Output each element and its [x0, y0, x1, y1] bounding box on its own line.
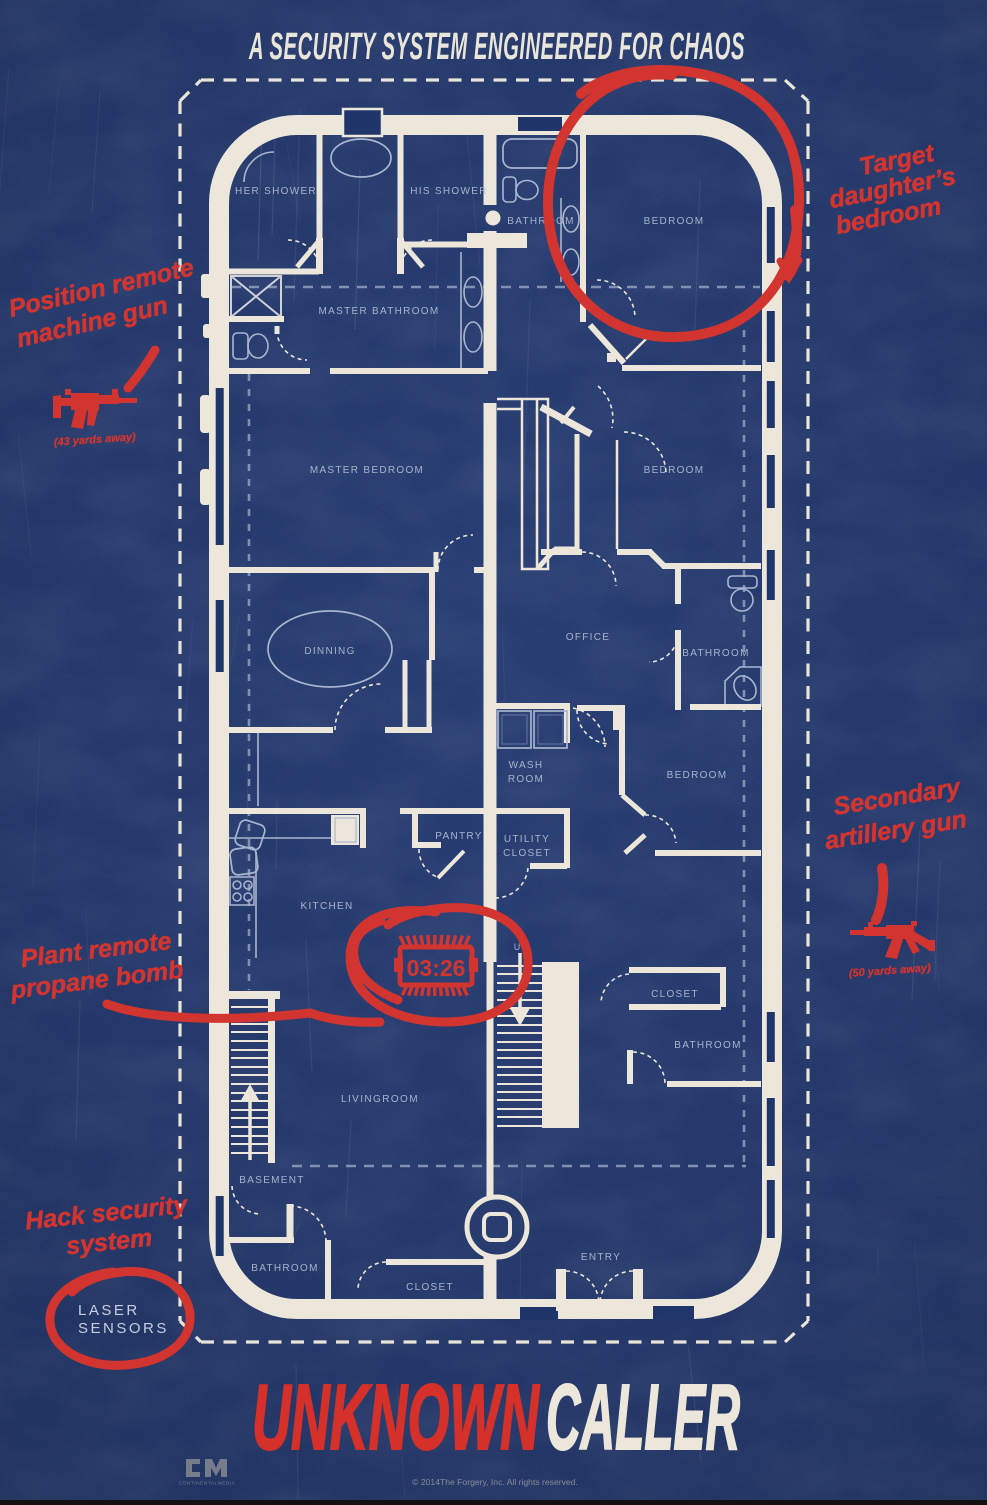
svg-text:A SECURITY SYSTEM ENGINEERED F: A SECURITY SYSTEM ENGINEERED FOR CHAOS — [248, 26, 745, 68]
svg-text:BATHROOM: BATHROOM — [251, 1263, 318, 1274]
svg-text:ROOM: ROOM — [508, 774, 544, 785]
svg-text:HER SHOWER: HER SHOWER — [235, 186, 317, 197]
svg-text:UTILITY: UTILITY — [504, 834, 550, 845]
svg-text:BEDROOM: BEDROOM — [667, 770, 728, 781]
svg-text:CONTINENTALMEDIA: CONTINENTALMEDIA — [179, 1481, 236, 1487]
svg-text:CLOSET: CLOSET — [406, 1282, 454, 1293]
svg-text:OFFICE: OFFICE — [566, 632, 610, 643]
svg-text:BASEMENT: BASEMENT — [239, 1175, 304, 1186]
svg-text:CLOSET: CLOSET — [503, 848, 551, 859]
svg-text:BEDROOM: BEDROOM — [644, 465, 705, 476]
svg-text:BATHROOM: BATHROOM — [682, 648, 749, 659]
svg-text:CALLER: CALLER — [546, 1365, 740, 1469]
svg-text:03:26: 03:26 — [407, 955, 466, 981]
svg-text:UNKNOWN: UNKNOWN — [252, 1365, 540, 1469]
svg-text:© 2014The Forgery, Inc. All ri: © 2014The Forgery, Inc. All rights reser… — [412, 1477, 578, 1487]
svg-text:LIVINGROOM: LIVINGROOM — [341, 1094, 419, 1105]
svg-text:DINNING: DINNING — [304, 646, 355, 657]
svg-text:KITCHEN: KITCHEN — [301, 901, 354, 912]
svg-text:ENTRY: ENTRY — [581, 1252, 621, 1263]
svg-text:WASH: WASH — [509, 760, 544, 771]
svg-text:BATHROOM: BATHROOM — [674, 1040, 741, 1051]
svg-text:PANTRY: PANTRY — [435, 831, 482, 842]
svg-text:BEDROOM: BEDROOM — [644, 216, 705, 227]
svg-text:LASER: LASER — [78, 1302, 140, 1319]
svg-text:MASTER BATHROOM: MASTER BATHROOM — [319, 306, 440, 317]
svg-text:HIS SHOWER: HIS SHOWER — [410, 186, 487, 197]
svg-text:SENSORS: SENSORS — [78, 1320, 169, 1337]
svg-text:CLOSET: CLOSET — [651, 989, 699, 1000]
svg-text:MASTER BEDROOM: MASTER BEDROOM — [310, 465, 424, 476]
